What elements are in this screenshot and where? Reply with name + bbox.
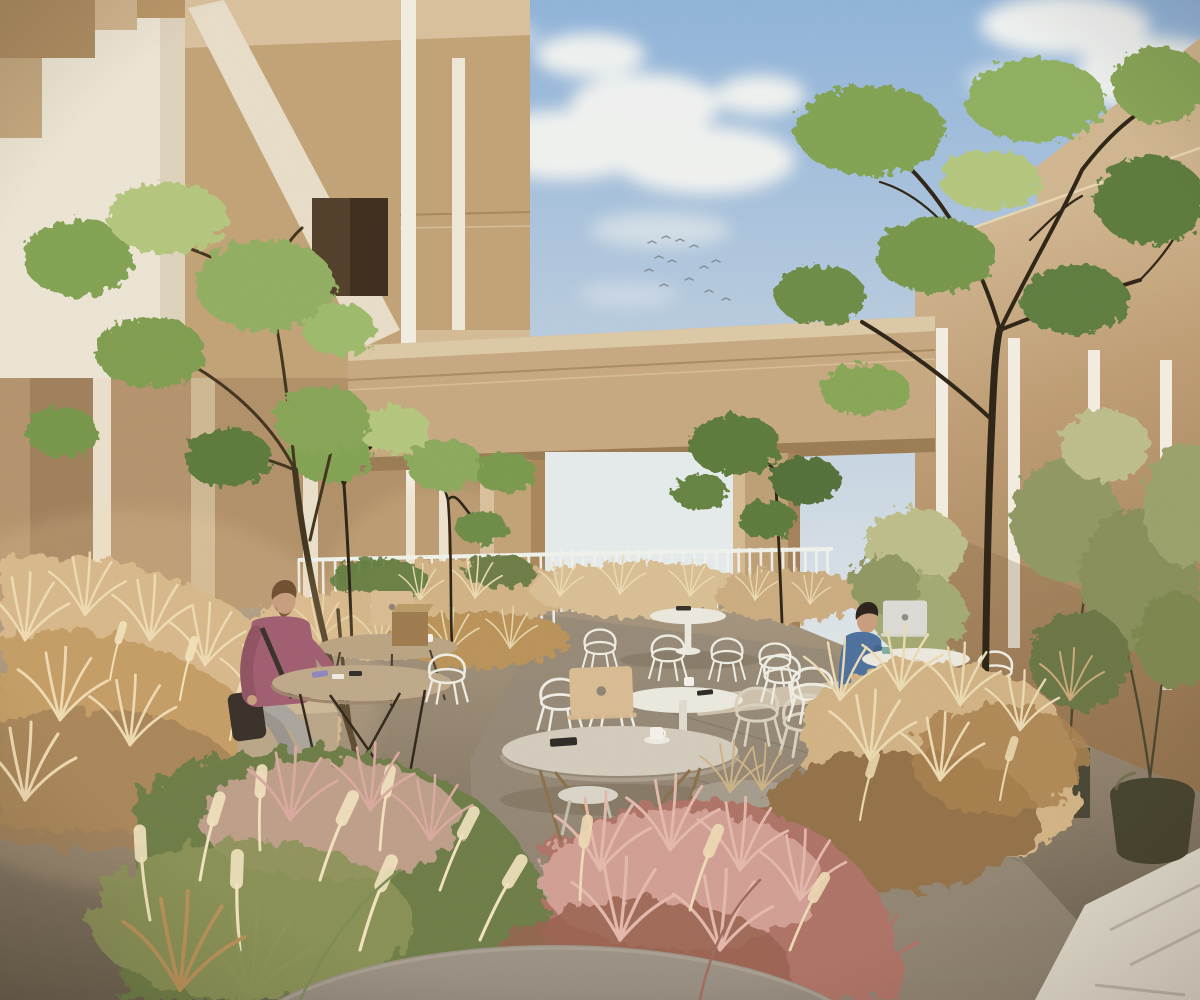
film-grain xyxy=(0,0,1200,1000)
courtyard-rendering xyxy=(0,0,1200,1000)
